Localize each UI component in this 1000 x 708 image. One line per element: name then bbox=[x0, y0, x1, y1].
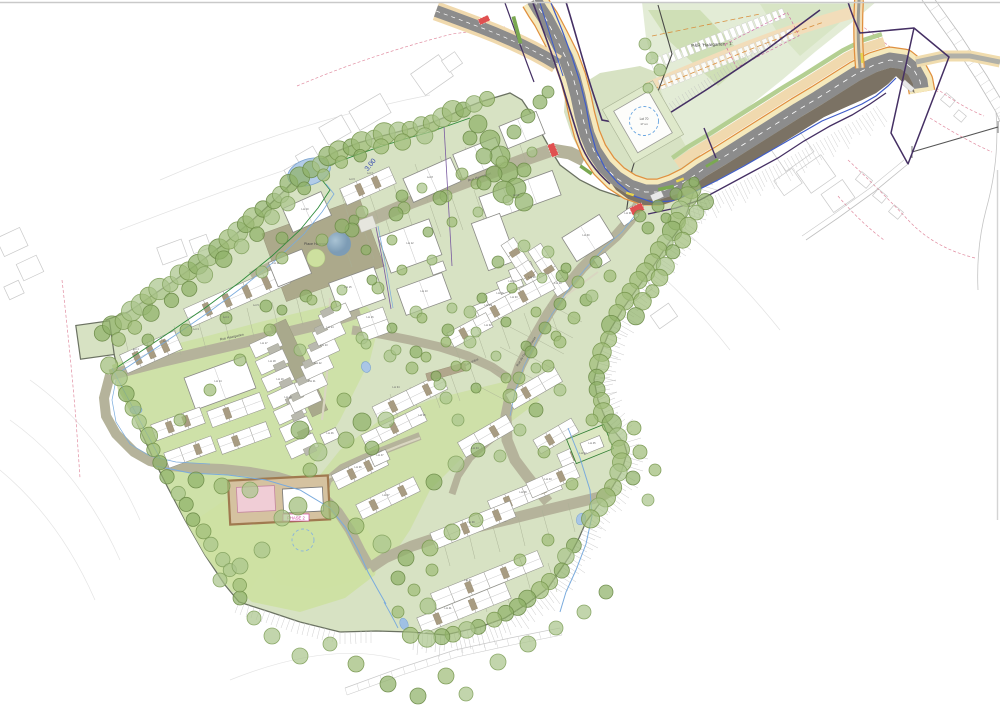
svg-text:Lot 39: Lot 39 bbox=[467, 520, 475, 524]
svg-text:Lot 5: Lot 5 bbox=[253, 303, 259, 307]
svg-text:Lot 47: Lot 47 bbox=[376, 453, 384, 457]
svg-text:Lot 9: Lot 9 bbox=[513, 193, 519, 197]
svg-text:Lot 16: Lot 16 bbox=[366, 315, 374, 319]
svg-text:Lot 21: Lot 21 bbox=[308, 379, 316, 383]
svg-text:Lot 34: Lot 34 bbox=[392, 385, 400, 389]
svg-text:Lot 3: Lot 3 bbox=[193, 327, 199, 331]
svg-text:Lot 40: Lot 40 bbox=[464, 578, 472, 582]
svg-text:17 un: 17 un bbox=[640, 122, 648, 126]
svg-text:Lot 22: Lot 22 bbox=[314, 361, 322, 365]
svg-text:Lot 14: Lot 14 bbox=[214, 379, 222, 383]
svg-text:Lot 25: Lot 25 bbox=[484, 303, 492, 307]
svg-text:Lot 29: Lot 29 bbox=[554, 281, 562, 285]
svg-text:Lot 18: Lot 18 bbox=[268, 359, 276, 363]
svg-text:Lot 44: Lot 44 bbox=[471, 446, 479, 450]
svg-text:Lot 13: Lot 13 bbox=[420, 289, 428, 293]
svg-text:Lot 12: Lot 12 bbox=[406, 241, 414, 245]
svg-text:Lot 36: Lot 36 bbox=[354, 465, 362, 469]
svg-text:Lot 70: Lot 70 bbox=[640, 117, 649, 121]
svg-text:Lot 37: Lot 37 bbox=[382, 493, 390, 497]
svg-text:Lot 43: Lot 43 bbox=[544, 477, 552, 481]
svg-text:Lot 4: Lot 4 bbox=[223, 315, 229, 319]
svg-text:Lot 45: Lot 45 bbox=[588, 441, 596, 445]
svg-text:Lot 15: Lot 15 bbox=[344, 285, 352, 289]
svg-text:Lot 27: Lot 27 bbox=[508, 279, 516, 283]
svg-text:Lot 6: Lot 6 bbox=[349, 177, 355, 181]
svg-text:Lot 17: Lot 17 bbox=[260, 341, 268, 345]
svg-text:Lot 35: Lot 35 bbox=[418, 413, 426, 417]
svg-text:Lot 8: Lot 8 bbox=[427, 175, 433, 179]
svg-text:Lot 2: Lot 2 bbox=[163, 339, 169, 343]
svg-text:Lot 1: Lot 1 bbox=[133, 347, 139, 351]
svg-text:Lot 10: Lot 10 bbox=[301, 207, 309, 211]
svg-text:Lot 26: Lot 26 bbox=[496, 291, 504, 295]
svg-text:Lot 28: Lot 28 bbox=[528, 275, 536, 279]
svg-text:Lot 20: Lot 20 bbox=[284, 395, 292, 399]
svg-text:Lot 41: Lot 41 bbox=[444, 606, 452, 610]
svg-text:Lot 11: Lot 11 bbox=[272, 261, 280, 265]
svg-text:Lot 24: Lot 24 bbox=[326, 325, 334, 329]
svg-text:Lot 31: Lot 31 bbox=[624, 211, 632, 215]
svg-text:Lot 46: Lot 46 bbox=[326, 431, 334, 435]
svg-text:Lot 38: Lot 38 bbox=[519, 490, 527, 494]
svg-text:Lot 32: Lot 32 bbox=[484, 323, 492, 327]
svg-text:Lot 30: Lot 30 bbox=[582, 233, 590, 237]
svg-text:Lot 33: Lot 33 bbox=[510, 295, 518, 299]
svg-text:Lot 7: Lot 7 bbox=[367, 171, 373, 175]
svg-text:Lot 19: Lot 19 bbox=[276, 377, 284, 381]
svg-text:Lot 23: Lot 23 bbox=[320, 343, 328, 347]
svg-text:Lot 42: Lot 42 bbox=[579, 451, 587, 455]
